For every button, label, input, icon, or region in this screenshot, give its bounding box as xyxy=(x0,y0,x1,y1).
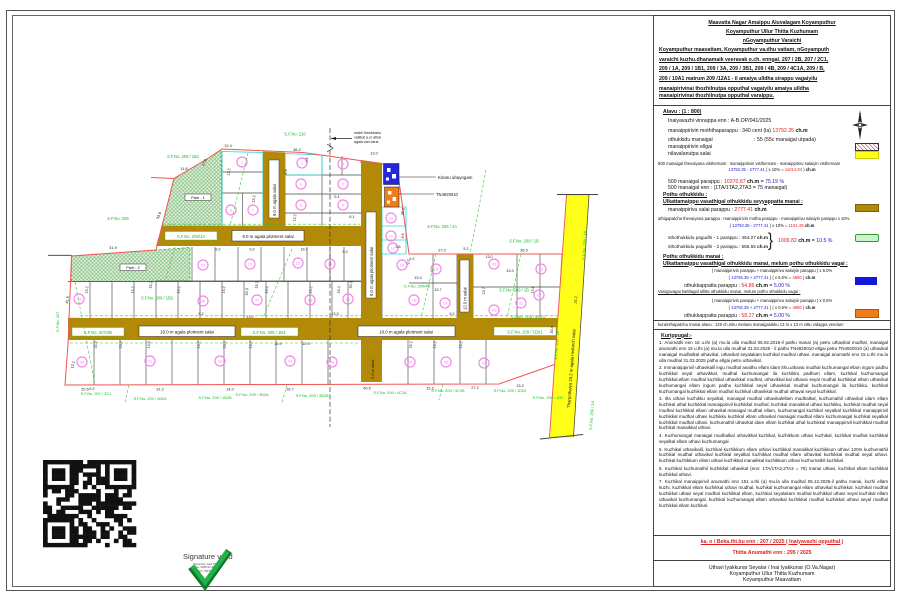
svg-text:S.F.No. 209 / 1B2: S.F.No. 209 / 1B2 xyxy=(141,296,174,301)
svg-text:9.2: 9.2 xyxy=(249,248,254,252)
svg-text:15.2: 15.2 xyxy=(309,286,314,294)
svg-text:S.F.No. 209 / 4C1A: S.F.No. 209 / 4C1A xyxy=(510,315,545,320)
svg-text:S.F.No. 207: S.F.No. 207 xyxy=(55,312,60,332)
svg-text:30: 30 xyxy=(492,308,497,313)
svg-text:43: 43 xyxy=(288,359,293,364)
svg-text:S.F.No. 207 / 2C1: S.F.No. 207 / 2C1 xyxy=(81,391,112,396)
svg-text:12.0 m salai: 12.0 m salai xyxy=(463,287,468,310)
svg-text:S.F.No. 207/2B: S.F.No. 207/2B xyxy=(84,330,112,335)
svg-text:9.0 m agala plotment salai: 9.0 m agala plotment salai xyxy=(242,234,293,239)
svg-text:S.F.No. 209 / 1D02: S.F.No. 209 / 1D02 xyxy=(494,388,527,393)
svg-text:15.2: 15.2 xyxy=(433,341,438,349)
svg-text:13.0: 13.0 xyxy=(485,255,492,259)
svg-text:5.2: 5.2 xyxy=(463,247,468,251)
svg-text:4: 4 xyxy=(300,182,303,187)
svg-text:15.2: 15.2 xyxy=(119,341,124,349)
svg-text:29: 29 xyxy=(443,301,448,306)
svg-text:9.2: 9.2 xyxy=(215,248,220,252)
svg-text:46: 46 xyxy=(444,360,449,365)
svg-text:38.0: 38.0 xyxy=(400,208,405,216)
svg-text:5: 5 xyxy=(342,182,345,187)
svg-text:32: 32 xyxy=(539,267,544,272)
svg-text:14.0: 14.0 xyxy=(226,388,233,392)
svg-text:21: 21 xyxy=(248,262,253,267)
svg-text:22: 22 xyxy=(296,261,301,266)
svg-text:13.0: 13.0 xyxy=(506,269,513,273)
svg-text:10.0 m agala plotment salai: 10.0 m agala plotment salai xyxy=(160,330,214,335)
svg-text:27: 27 xyxy=(537,293,542,298)
svg-text:27.2: 27.2 xyxy=(471,386,478,390)
svg-text:S.F.No. 209 / 1B: S.F.No. 209 / 1B xyxy=(499,288,529,293)
svg-text:9.2: 9.2 xyxy=(449,312,454,316)
svg-text:9.2: 9.2 xyxy=(342,250,347,254)
svg-text:47: 47 xyxy=(482,361,487,366)
svg-text:15.2: 15.2 xyxy=(409,341,414,349)
svg-text:S.F.No. 209 / 3B2A: S.F.No. 209 / 3B2A xyxy=(235,392,268,397)
svg-text:16.3: 16.3 xyxy=(245,288,250,296)
svg-text:2: 2 xyxy=(301,161,304,166)
svg-text:9.2: 9.2 xyxy=(198,312,203,316)
svg-text:13.2: 13.2 xyxy=(252,195,257,203)
svg-text:15.2: 15.2 xyxy=(149,281,154,289)
svg-text:20.4: 20.4 xyxy=(550,326,555,334)
svg-text:20: 20 xyxy=(201,263,206,268)
svg-text:1: 1 xyxy=(241,160,244,165)
svg-text:36: 36 xyxy=(201,299,206,304)
svg-text:24: 24 xyxy=(400,263,405,268)
svg-text:26.7: 26.7 xyxy=(286,388,293,392)
svg-text:13.7: 13.7 xyxy=(482,287,487,295)
svg-text:S.F.No. 209/1A: S.F.No. 209/1A xyxy=(177,234,205,239)
svg-text:4.6: 4.6 xyxy=(401,233,405,239)
svg-text:S.F.No. 210: S.F.No. 210 xyxy=(284,132,306,137)
svg-text:vaikkal a.ur athal: vaikkal a.ur athal xyxy=(354,136,381,140)
svg-text:31: 31 xyxy=(519,301,524,306)
svg-text:14.8: 14.8 xyxy=(147,341,152,349)
svg-text:15.2: 15.2 xyxy=(85,286,90,294)
svg-text:TN4920010: TN4920010 xyxy=(436,192,459,197)
svg-text:9.2: 9.2 xyxy=(409,257,414,261)
svg-text:28: 28 xyxy=(412,298,417,303)
svg-text:41.6: 41.6 xyxy=(65,296,70,304)
svg-text:S.F.No. 209 / 4C1B: S.F.No. 209 / 4C1B xyxy=(431,388,465,393)
svg-text:S.F.No. 230 / 1B: S.F.No. 230 / 1B xyxy=(581,230,588,260)
svg-text:S.F.No. 209 / 4C2A: S.F.No. 209 / 4C2A xyxy=(373,390,407,395)
svg-text:40.5: 40.5 xyxy=(363,387,370,391)
svg-text:9.0 m salai: 9.0 m salai xyxy=(370,360,375,379)
svg-text:16.7: 16.7 xyxy=(300,248,307,252)
svg-text:23.2: 23.2 xyxy=(574,296,579,304)
svg-text:12.2: 12.2 xyxy=(293,214,298,222)
svg-text:S.F.No. 209 / 1B2A: S.F.No. 209 / 1B2A xyxy=(133,396,166,401)
svg-text:39: 39 xyxy=(346,297,351,302)
svg-text:13.0: 13.0 xyxy=(370,152,377,156)
svg-text:S.F.No. 209 / 1B3: S.F.No. 209 / 1B3 xyxy=(253,330,286,335)
svg-text:3: 3 xyxy=(342,162,345,167)
svg-text:36.0: 36.0 xyxy=(520,249,527,253)
svg-text:15.6: 15.6 xyxy=(531,286,536,294)
svg-text:9.0 m agala plotment salai: 9.0 m agala plotment salai xyxy=(369,247,374,296)
svg-text:15.9: 15.9 xyxy=(302,342,309,346)
svg-text:S.F.No. 209 / 1B: S.F.No. 209 / 1B xyxy=(509,239,539,244)
svg-text:8: 8 xyxy=(300,203,303,208)
svg-text:16.3: 16.3 xyxy=(337,286,342,294)
svg-text:27.0: 27.0 xyxy=(438,249,445,253)
svg-text:11: 11 xyxy=(389,234,394,239)
svg-text:23: 23 xyxy=(328,262,333,267)
svg-text:41: 41 xyxy=(148,359,153,364)
svg-text:31.9: 31.9 xyxy=(109,246,116,250)
svg-text:45: 45 xyxy=(408,360,413,365)
svg-text:15.2: 15.2 xyxy=(459,341,464,349)
svg-text:Park - 1: Park - 1 xyxy=(191,195,205,200)
svg-text:S.F.No. 209: S.F.No. 209 xyxy=(107,216,129,221)
svg-text:15.2: 15.2 xyxy=(255,281,260,289)
svg-text:10.0 m agala plotment salai: 10.0 m agala plotment salai xyxy=(379,330,433,335)
svg-text:15.9: 15.9 xyxy=(274,342,281,346)
svg-text:44: 44 xyxy=(330,360,335,365)
svg-text:S.F.No. 230 / 1A: S.F.No. 230 / 1A xyxy=(588,400,595,430)
svg-text:15.2: 15.2 xyxy=(94,341,99,349)
svg-text:15.2: 15.2 xyxy=(131,286,136,294)
svg-text:5.1: 5.1 xyxy=(334,195,339,199)
svg-text:S.F.No. 208 / 1A: S.F.No. 208 / 1A xyxy=(427,224,457,229)
svg-text:4.6: 4.6 xyxy=(305,157,309,162)
svg-text:S.F.No. 209/4B: S.F.No. 209/4B xyxy=(404,284,431,289)
svg-text:16.3: 16.3 xyxy=(349,281,354,289)
svg-text:25: 25 xyxy=(434,267,439,272)
svg-text:Park - 2: Park - 2 xyxy=(126,265,140,270)
svg-text:36.2: 36.2 xyxy=(293,148,300,152)
svg-text:3.6: 3.6 xyxy=(395,245,400,249)
svg-text:7: 7 xyxy=(252,208,255,213)
svg-text:12.4: 12.4 xyxy=(224,144,231,148)
svg-text:15.2: 15.2 xyxy=(223,341,228,349)
svg-text:S.F.No. 209 / 1D01: S.F.No. 209 / 1D01 xyxy=(507,330,543,335)
svg-text:S.F.No. 209 / 1B1: S.F.No. 209 / 1B1 xyxy=(167,154,200,159)
svg-text:37: 37 xyxy=(255,298,260,303)
svg-text:33.8: 33.8 xyxy=(156,211,162,219)
svg-text:S.F.No. 209 / 1B2B: S.F.No. 209 / 1B2B xyxy=(198,395,231,400)
svg-text:11.8: 11.8 xyxy=(180,167,187,171)
svg-text:agala vari varai: agala vari varai xyxy=(354,140,379,144)
svg-text:13.0: 13.0 xyxy=(414,276,421,280)
svg-text:12.2: 12.2 xyxy=(227,168,232,176)
svg-text:Kinaru ubayogam: Kinaru ubayogam xyxy=(438,175,473,180)
svg-text:9: 9 xyxy=(342,203,345,208)
svg-text:38: 38 xyxy=(308,298,313,303)
svg-text:6.1: 6.1 xyxy=(349,215,354,219)
svg-text:33: 33 xyxy=(77,297,82,302)
svg-text:13.0: 13.0 xyxy=(331,312,338,316)
svg-text:40: 40 xyxy=(80,360,85,365)
svg-text:S.F.No. 209 / 3B2B: S.F.No. 209 / 3B2B xyxy=(295,393,328,398)
svg-text:15.2: 15.2 xyxy=(177,286,182,294)
svg-text:15.2: 15.2 xyxy=(249,341,254,349)
svg-text:15.2: 15.2 xyxy=(222,286,227,294)
svg-text:4.6: 4.6 xyxy=(284,169,288,175)
svg-text:S.F.No. 209 / 1D2: S.F.No. 209 / 1D2 xyxy=(533,395,564,400)
svg-text:matril thanirkalvu: matril thanirkalvu xyxy=(354,131,381,135)
svg-text:31.2: 31.2 xyxy=(156,388,163,392)
svg-text:15.2: 15.2 xyxy=(197,341,202,349)
svg-text:13.7: 13.7 xyxy=(434,288,441,292)
svg-text:6: 6 xyxy=(230,208,233,213)
svg-text:10: 10 xyxy=(389,216,394,221)
svg-text:9.2: 9.2 xyxy=(89,387,94,391)
svg-text:26: 26 xyxy=(492,262,497,267)
svg-text:12.1: 12.1 xyxy=(70,361,75,369)
svg-text:42: 42 xyxy=(218,359,223,364)
svg-text:15.2: 15.2 xyxy=(265,286,270,294)
svg-text:9.0 m agala salai: 9.0 m agala salai xyxy=(272,184,277,216)
